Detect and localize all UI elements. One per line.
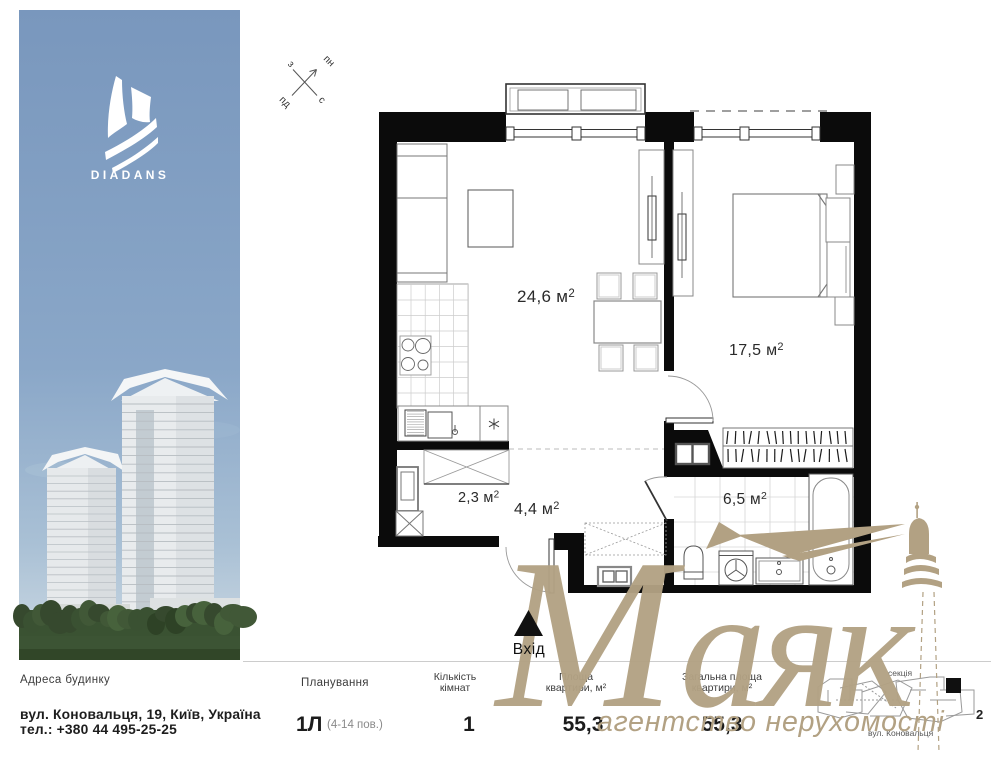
svg-text:24,6 м2: 24,6 м2 — [517, 287, 575, 306]
svg-text:кімнат: кімнат — [440, 682, 471, 694]
svg-text:1Л: 1Л — [296, 713, 322, 736]
svg-text:тел.: +380 44 495-25-25: тел.: +380 44 495-25-25 — [20, 722, 177, 737]
svg-text:Планування: Планування — [301, 677, 369, 689]
svg-text:2,3 м2: 2,3 м2 — [458, 490, 500, 507]
svg-text:Вхід: Вхід — [513, 641, 545, 658]
svg-text:DIADANS: DIADANS — [91, 168, 169, 182]
svg-text:Адреса будинку: Адреса будинку — [20, 674, 110, 686]
svg-text:1: 1 — [463, 713, 475, 736]
svg-text:17,5 м2: 17,5 м2 — [729, 341, 784, 359]
svg-text:6,5 м2: 6,5 м2 — [723, 490, 767, 508]
svg-text:(4-14 пов.): (4-14 пов.) — [327, 719, 383, 731]
svg-text:2: 2 — [976, 707, 983, 722]
svg-text:агентство нерухомості: агентство нерухомості — [597, 706, 945, 738]
svg-text:вул. Коновальця, 19, Київ, Укр: вул. Коновальця, 19, Київ, Україна — [20, 707, 261, 722]
